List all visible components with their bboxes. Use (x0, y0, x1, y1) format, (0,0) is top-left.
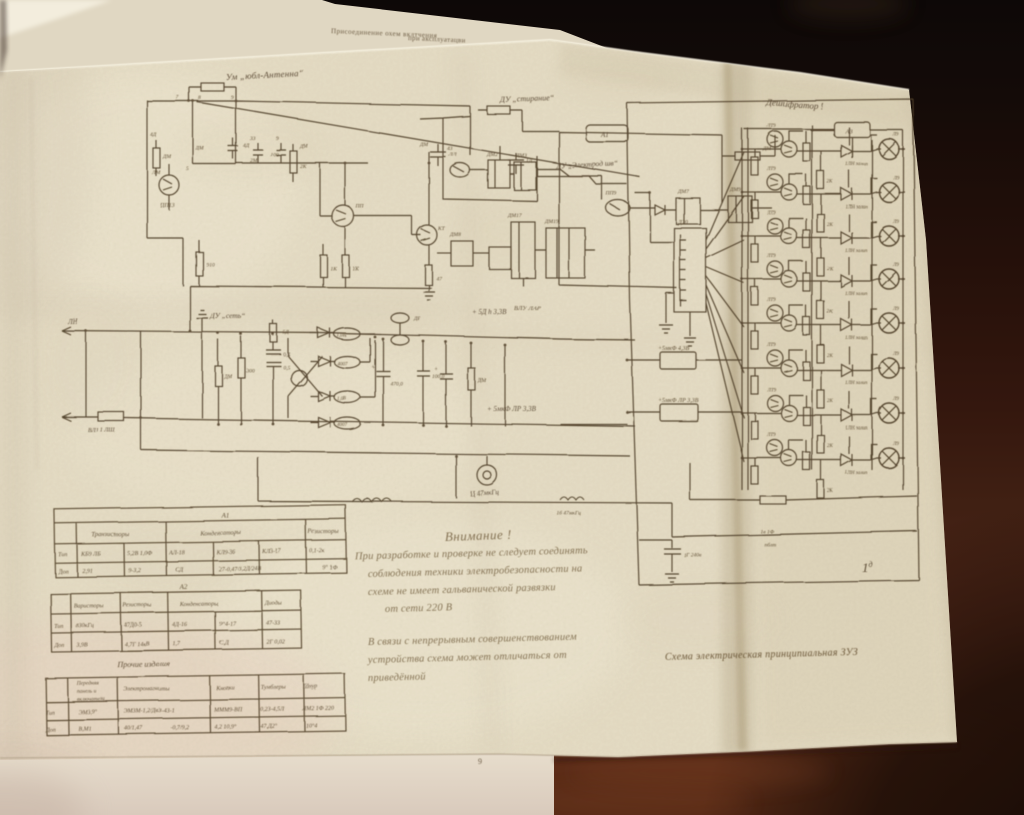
svg-text:Внимание !: Внимание ! (445, 527, 512, 544)
svg-text:3,9В: 3,9В (75, 642, 88, 648)
svg-text:43: 43 (447, 145, 453, 152)
svg-text:2К: 2К (300, 164, 307, 170)
svg-text:47,Д2°: 47,Д2° (260, 723, 277, 730)
svg-text:910: 910 (206, 262, 215, 268)
svg-text:Конденсаторы: Конденсаторы (199, 529, 242, 537)
svg-text:ДМ3: ДМ3 (515, 153, 527, 159)
svg-text:47Д0-5: 47Д0-5 (124, 622, 142, 629)
svg-text:5Д: 5Д (283, 330, 290, 336)
svg-text:включатели: включатели (77, 696, 105, 702)
svg-text:Тип: Тип (54, 624, 63, 630)
svg-text:ДМ7: ДМ7 (677, 189, 689, 195)
svg-text:-0,7/9,2: -0,7/9,2 (170, 725, 189, 731)
svg-text:4007: 4007 (337, 423, 348, 428)
svg-text:ЭМ3М-1,2/Дв3-43-1: ЭМ3М-1,2/Дв3-43-1 (124, 707, 175, 715)
svg-text:Варисторы: Варисторы (74, 603, 104, 609)
svg-text:+5мкФ ЛР 3,3В: +5мкФ ЛР 3,3В (658, 398, 699, 404)
svg-text:1,0В: 1,0В (337, 334, 346, 339)
svg-text:Д20: Д20 (677, 220, 688, 226)
svg-text:+: + (371, 365, 375, 371)
svg-text:27-0,47/3,2Д/24В: 27-0,47/3,2Д/24В (218, 565, 261, 573)
svg-text:4Д: 4Д (243, 142, 250, 149)
svg-text:В,М1: В,М1 (78, 727, 91, 733)
svg-text:Транзисторы: Транзисторы (92, 531, 130, 539)
svg-text:ДМ: ДМ (195, 146, 204, 152)
svg-text:панель и: панель и (77, 688, 97, 694)
svg-text:8: 8 (198, 95, 201, 101)
svg-text:0,5: 0,5 (283, 365, 290, 371)
svg-text:ДМ19: ДМ19 (544, 219, 559, 225)
svg-text:9: 9 (276, 136, 279, 142)
svg-text:Тип: Тип (45, 710, 54, 716)
svg-text:1Д: 1Д (526, 158, 533, 164)
svg-text:+ 5мкФ ЛР 3,3В: + 5мкФ ЛР 3,3В (487, 405, 537, 413)
svg-text:КЛ9-36: КЛ9-36 (215, 549, 235, 555)
svg-text:830кГц: 830кГц (76, 623, 94, 629)
svg-text:1Г 240в: 1Г 240в (684, 552, 703, 559)
svg-text:Тип: Тип (58, 552, 67, 558)
svg-text:ЛН: ЛН (67, 318, 79, 326)
svg-text:ЛЛ: ЛЛ (448, 152, 457, 158)
svg-text:0,23-4,5Л: 0,23-4,5Л (260, 706, 285, 713)
svg-text:+ 5Д h 3,3В: + 5Д h 3,3В (472, 308, 507, 316)
svg-text:1К: 1К (352, 266, 359, 272)
svg-text:приведённой: приведённой (368, 671, 427, 684)
svg-text:Резисторы: Резисторы (307, 528, 340, 536)
svg-text:33: 33 (249, 136, 256, 142)
svg-text:1б 47мкГц: 1б 47мкГц (556, 509, 581, 516)
svg-text:от сети 220 В: от сети 220 В (385, 602, 453, 615)
svg-text:Прочие изделия: Прочие изделия (116, 659, 170, 669)
svg-text:1в 1Ф: 1в 1Ф (760, 529, 774, 535)
svg-text:ДМ2: ДМ2 (486, 152, 498, 158)
svg-text:470,0: 470,0 (390, 380, 403, 387)
svg-text:Шнур: Шнур (302, 684, 318, 690)
svg-text:Тумблеры: Тумблеры (261, 683, 286, 690)
svg-text:ПП13: ПП13 (159, 203, 175, 209)
svg-text:А1: А1 (220, 512, 229, 520)
svg-text:Доп: Доп (53, 643, 64, 649)
svg-text:9° 1Ф: 9° 1Ф (322, 564, 337, 571)
svg-text:4Д-16: 4Д-16 (172, 621, 187, 628)
svg-text:ДМ: ДМ (419, 142, 428, 148)
svg-text:10°4: 10°4 (305, 722, 317, 729)
svg-text:ДМ: ДМ (299, 144, 308, 150)
svg-text:ДМ: ДМ (477, 378, 486, 384)
svg-text:Кнопки: Кнопки (215, 685, 235, 691)
svg-text:5: 5 (186, 166, 189, 172)
svg-text:ЛМ: ЛМ (151, 170, 161, 176)
svg-text:4Д: 4Д (150, 131, 157, 138)
svg-text:С,Д: С,Д (219, 640, 230, 646)
svg-text:40/1,47: 40/1,47 (124, 725, 143, 732)
svg-text:КБ9 ЛБ: КБ9 ЛБ (80, 552, 101, 558)
svg-text:4,7Г 14кВ: 4,7Г 14кВ (124, 640, 149, 647)
svg-text:2,91: 2,91 (82, 569, 93, 575)
svg-text:9-3,2: 9-3,2 (128, 568, 141, 574)
svg-text:4007: 4007 (337, 362, 348, 367)
svg-text:9: 9 (231, 95, 234, 101)
svg-text:ДМ: ДМ (223, 374, 232, 380)
svg-text:9°4-17: 9°4-17 (219, 620, 237, 627)
svg-text:+: + (434, 367, 438, 373)
svg-text:АЛ-18: АЛ-18 (168, 550, 185, 556)
svg-text:ПП9: ПП9 (605, 191, 617, 197)
svg-text:СД: СД (175, 567, 184, 573)
svg-text:пблт: пблт (764, 541, 776, 548)
svg-text:Передняя: Передняя (76, 679, 100, 686)
svg-text:9: 9 (478, 757, 482, 766)
svg-text:47-33: 47-33 (266, 619, 280, 626)
svg-text:5,2В 1,0Ф: 5,2В 1,0Ф (127, 551, 152, 557)
svg-text:ЭМ3,9°: ЭМ3,9° (78, 708, 98, 715)
svg-text:ДМ: ДМ (162, 154, 171, 160)
svg-text:0,1-2к: 0,1-2к (309, 548, 325, 554)
svg-text:КТ: КТ (437, 226, 446, 232)
svg-text:300: 300 (245, 368, 255, 374)
svg-text:ДР: ДР (413, 316, 421, 322)
svg-text:МММ9-ВП: МММ9-ВП (213, 707, 243, 713)
svg-text:Электромагниты: Электромагниты (124, 686, 170, 693)
svg-text:ДМ17: ДМ17 (507, 213, 522, 219)
svg-text:+5мкФ 4,3В: +5мкФ 4,3В (658, 345, 690, 352)
svg-text:47: 47 (436, 275, 442, 282)
svg-text:Диоды: Диоды (264, 599, 282, 606)
svg-text:Конденсаторы: Конденсаторы (179, 600, 218, 608)
svg-text:ВЛУ ЛАР: ВЛУ ЛАР (514, 305, 541, 312)
svg-text:ВЛ1 1 ЛШ: ВЛ1 1 ЛШ (88, 428, 116, 434)
svg-text:А2: А2 (178, 583, 187, 591)
svg-text:1К: 1К (330, 266, 337, 272)
svg-text:Резисторы: Резисторы (122, 602, 152, 608)
svg-text:ДМ8: ДМ8 (449, 232, 461, 238)
svg-text:1,0В: 1,0В (337, 397, 346, 402)
svg-text:Доп: Доп (57, 569, 68, 575)
svg-text:2Г 0,02: 2Г 0,02 (266, 639, 285, 645)
svg-text:ДУ „сеть“: ДУ „сеть“ (209, 311, 245, 320)
svg-text:ПП: ПП (355, 204, 365, 210)
svg-text:1,7: 1,7 (172, 641, 181, 647)
svg-text:ДМ9: ДМ9 (729, 187, 741, 193)
svg-text:Доп: Доп (44, 727, 55, 733)
svg-text:4,2 10,9°: 4,2 10,9° (214, 723, 237, 730)
svg-text:КЛ3-17: КЛ3-17 (261, 549, 282, 555)
svg-text:ЛМ2 1Ф 220: ЛМ2 1Ф 220 (301, 706, 334, 713)
svg-text:7: 7 (176, 95, 179, 101)
svg-text:А1: А1 (600, 131, 609, 139)
